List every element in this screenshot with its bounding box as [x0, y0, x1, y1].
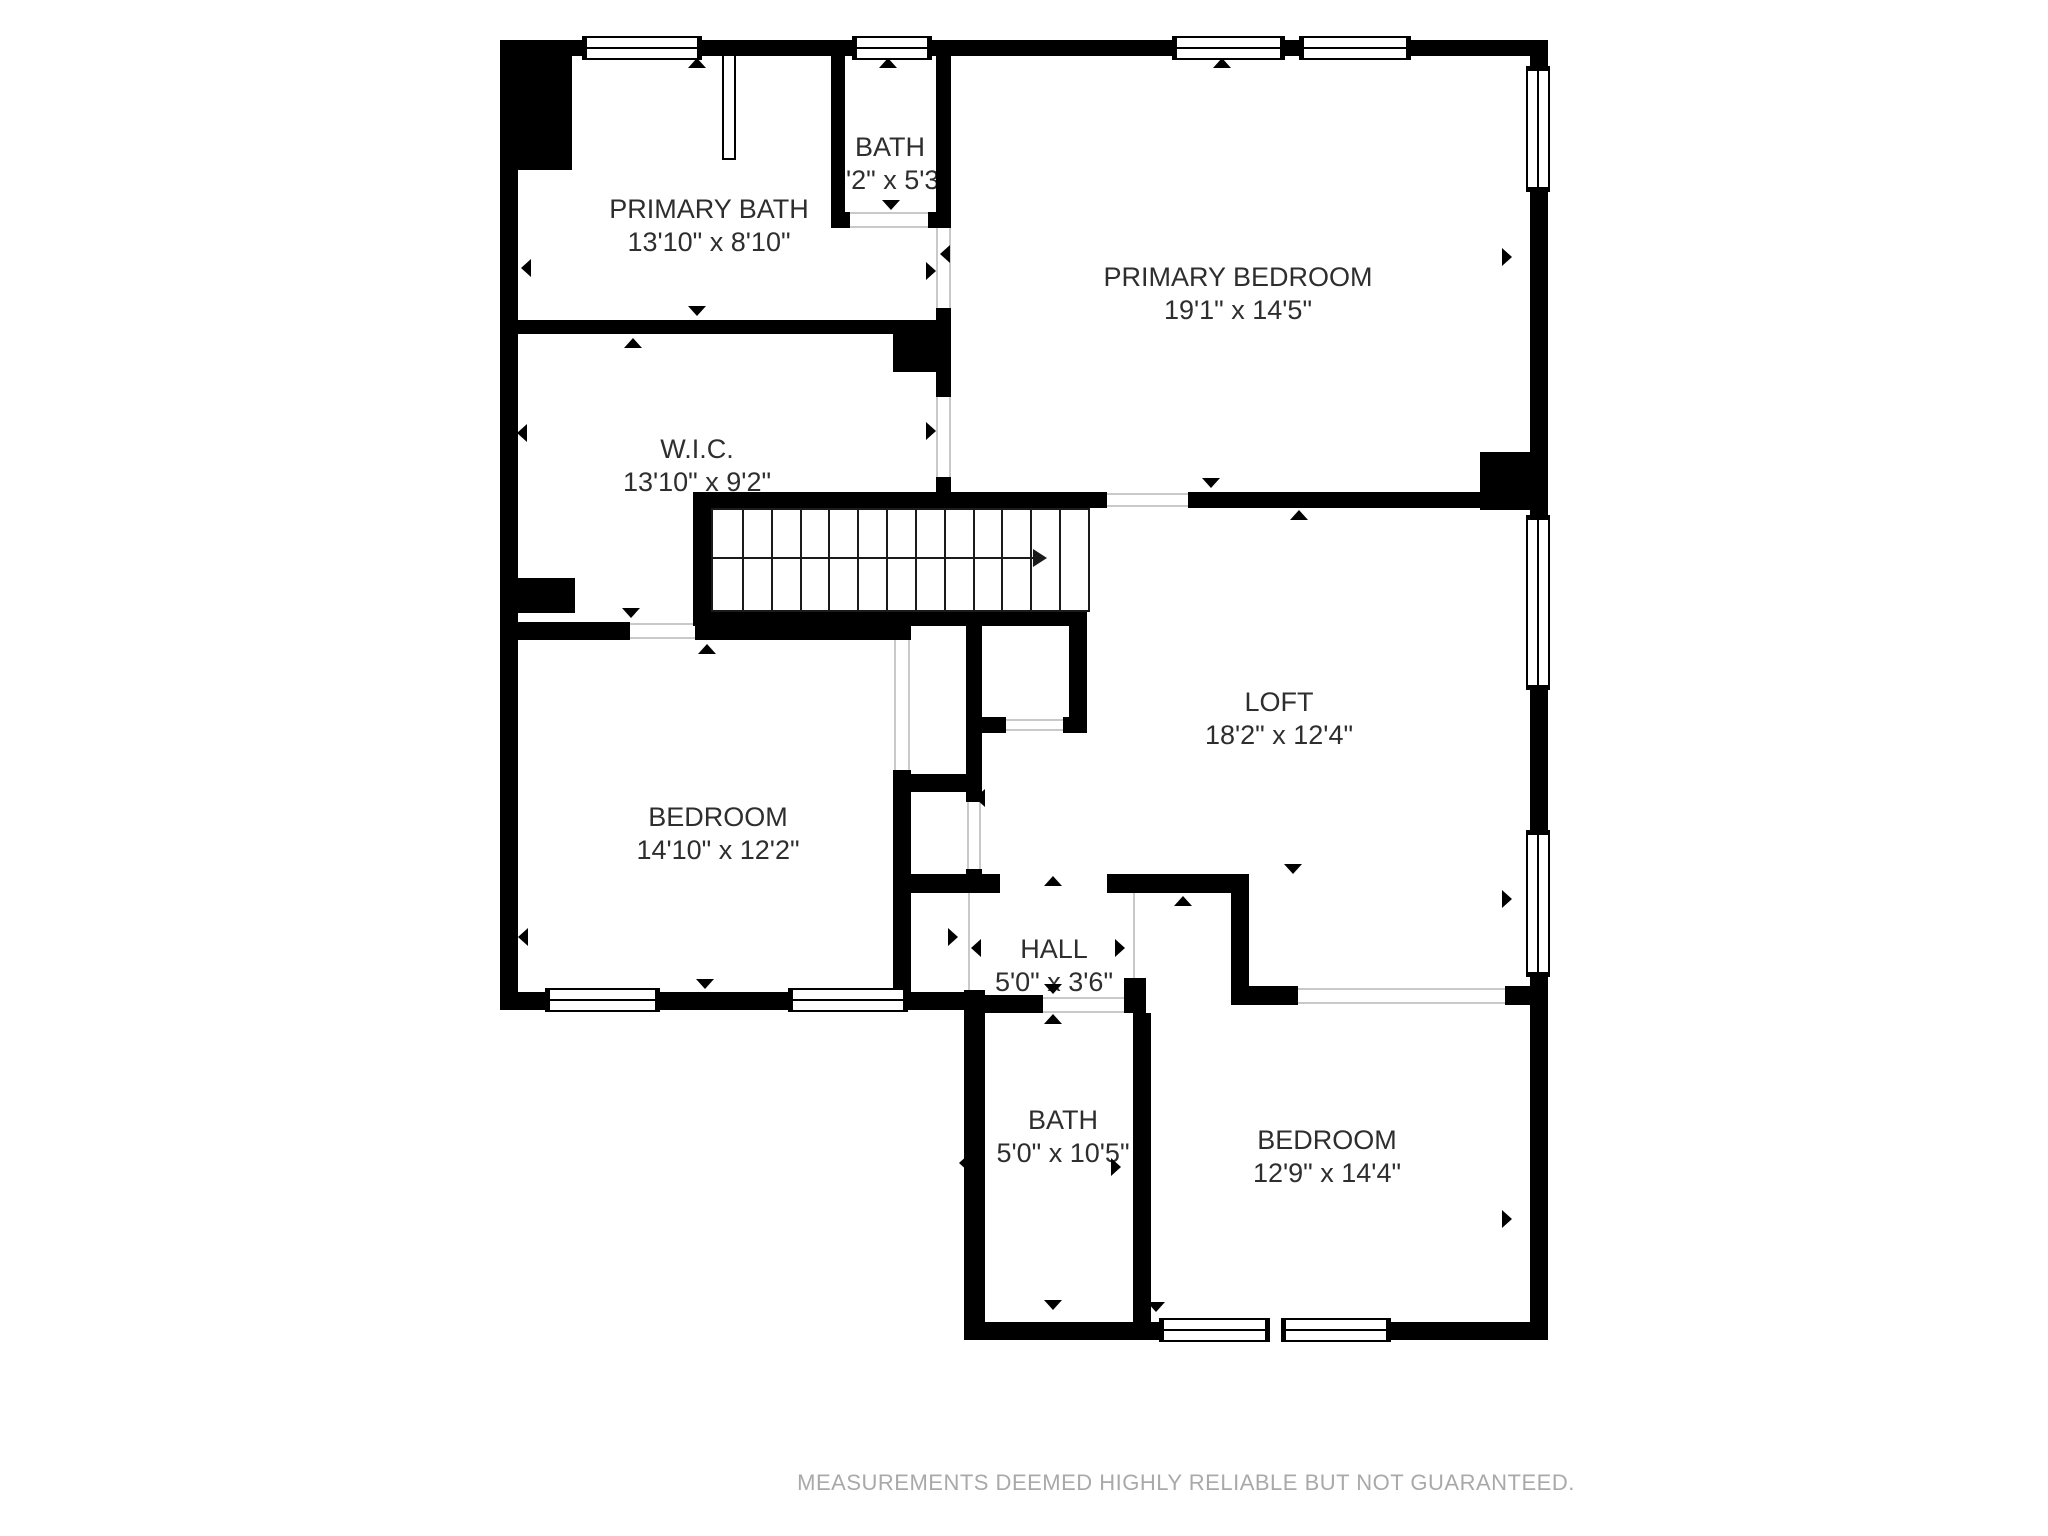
door-arrow-icon — [1044, 876, 1062, 886]
wall — [500, 622, 630, 640]
room-dims: 14'10" x 12'2" — [636, 834, 799, 867]
door-arrow-icon — [1136, 1139, 1146, 1157]
wall — [1133, 1013, 1151, 1340]
room-label-bedroom-right: BEDROOM 12'9" x 14'4" — [1253, 1124, 1401, 1190]
wall — [500, 40, 572, 170]
stair-tread — [915, 510, 917, 610]
door-opening — [630, 623, 695, 625]
wall — [1285, 40, 1299, 56]
wall — [500, 992, 545, 1010]
room-dims: 12'9" x 14'4" — [1253, 1157, 1401, 1190]
room-dims: 5'0" x 10'5" — [996, 1137, 1129, 1170]
cased-opening — [1298, 988, 1505, 990]
window — [582, 36, 702, 60]
stair-tread — [800, 510, 802, 610]
door-arrow-icon — [948, 928, 958, 946]
window — [1299, 36, 1411, 60]
door-opening — [1006, 719, 1063, 721]
room-dims: 3'2" x 5'3" — [831, 164, 949, 197]
door-arrow-icon — [926, 422, 936, 440]
wall — [1188, 492, 1480, 508]
door-arrow-icon — [940, 245, 950, 263]
door-opening — [949, 397, 951, 477]
door-arrow-icon — [1115, 939, 1125, 957]
door-opening — [936, 228, 938, 308]
stair-tread — [944, 510, 946, 610]
stair-direction-line — [711, 557, 1033, 559]
door-opening — [1107, 505, 1188, 507]
stair-tread — [1030, 510, 1032, 610]
door-arrow-icon — [1284, 864, 1302, 874]
stair-direction-arrow-icon — [1033, 549, 1047, 567]
stair-tread — [857, 510, 859, 610]
wall — [893, 320, 951, 372]
door-arrow-icon — [1044, 1014, 1062, 1024]
wall — [518, 578, 575, 613]
stair-tread — [1059, 510, 1061, 610]
door-arrow-icon — [517, 424, 527, 442]
wall — [903, 874, 1000, 893]
door-arrow-icon — [624, 338, 642, 348]
door-arrow-icon — [1502, 890, 1512, 908]
door-opening — [1133, 893, 1135, 978]
wall — [500, 40, 518, 1008]
door-arrow-icon — [1502, 248, 1512, 266]
room-name: BATH — [831, 131, 949, 164]
wall — [985, 995, 1043, 1013]
stair-tread — [771, 510, 773, 610]
wall — [831, 40, 845, 227]
wall — [1231, 874, 1249, 1005]
room-dims: 13'10" x 8'10" — [609, 226, 809, 259]
room-label-primary-bedroom: PRIMARY BEDROOM 19'1" x 14'5" — [1103, 261, 1372, 327]
window — [852, 36, 932, 60]
door-arrow-icon — [926, 262, 936, 280]
floor-plan: PRIMARY BATH 13'10" x 8'10" BATH 3'2" x … — [0, 0, 2048, 1536]
door-opening — [979, 802, 981, 869]
door-arrow-icon — [698, 644, 716, 654]
wall — [1124, 978, 1146, 1013]
room-label-bath-upper: BATH 3'2" x 5'3" — [831, 131, 949, 197]
wall — [982, 717, 1006, 733]
wall — [1480, 452, 1548, 510]
room-name: PRIMARY BEDROOM — [1103, 261, 1372, 294]
door-arrow-icon — [688, 306, 706, 316]
door-arrow-icon — [622, 608, 640, 618]
wall — [1530, 40, 1548, 66]
room-dims: 19'1" x 14'5" — [1103, 294, 1372, 327]
window — [788, 988, 908, 1012]
wall — [1391, 1322, 1548, 1340]
wall — [1249, 986, 1298, 1005]
wall — [936, 40, 951, 228]
door-arrow-icon — [1111, 1158, 1121, 1176]
door-opening — [1043, 1011, 1124, 1013]
room-name: HALL — [995, 933, 1113, 966]
door-arrow-icon — [1174, 896, 1192, 906]
door-opening — [968, 893, 970, 993]
room-label-loft: LOFT 18'2" x 12'4" — [1205, 686, 1353, 752]
door-arrow-icon — [879, 58, 897, 68]
wall — [1063, 717, 1087, 733]
door-arrow-icon — [1290, 510, 1308, 520]
wall — [831, 212, 850, 228]
wall — [932, 40, 1172, 56]
room-name: BATH — [996, 1104, 1129, 1137]
door-arrow-icon — [521, 259, 531, 277]
room-name: LOFT — [1205, 686, 1353, 719]
stair-tread — [828, 510, 830, 610]
wall — [966, 612, 982, 802]
door-arrow-icon — [1502, 1210, 1512, 1228]
wall — [695, 612, 893, 640]
cased-opening — [1298, 1002, 1505, 1004]
door-arrow-icon — [1202, 478, 1220, 488]
room-label-bath-lower: BATH 5'0" x 10'5" — [996, 1104, 1129, 1170]
wall — [1107, 874, 1231, 893]
room-label-bedroom-left: BEDROOM 14'10" x 12'2" — [636, 801, 799, 867]
window — [1159, 1318, 1270, 1342]
door-opening — [630, 637, 695, 639]
window — [1526, 66, 1550, 192]
door-opening — [1006, 729, 1063, 731]
door-opening — [949, 228, 951, 308]
stair-tread — [1001, 510, 1003, 610]
door-opening — [894, 640, 896, 770]
door-arrow-icon — [688, 58, 706, 68]
room-name: PRIMARY BATH — [609, 193, 809, 226]
door-arrow-icon — [1044, 1300, 1062, 1310]
wall — [1069, 612, 1087, 733]
wall — [660, 992, 788, 1010]
door-arrow-icon — [959, 1154, 969, 1172]
wall — [964, 1322, 1159, 1340]
window — [1526, 515, 1550, 690]
room-name: BEDROOM — [1253, 1124, 1401, 1157]
door-opening — [850, 226, 928, 228]
door-arrow-icon — [1044, 984, 1062, 994]
disclaimer-text: MEASUREMENTS DEEMED HIGHLY RELIABLE BUT … — [797, 1470, 1575, 1496]
window — [545, 988, 660, 1012]
room-name: BEDROOM — [636, 801, 799, 834]
door-opening — [967, 802, 969, 869]
stair-tread — [886, 510, 888, 610]
wall — [693, 492, 1107, 508]
wall — [1505, 986, 1530, 1005]
wall — [893, 612, 911, 640]
stair-tread — [973, 510, 975, 610]
wall — [1530, 977, 1548, 1340]
wall — [500, 320, 893, 334]
door-arrow-icon — [975, 789, 985, 807]
wall — [928, 212, 951, 228]
door-opening — [1107, 493, 1188, 495]
door-arrow-icon — [518, 928, 528, 946]
room-label-wic: W.I.C. 13'10" x 9'2" — [623, 433, 771, 499]
door-arrow-icon — [882, 200, 900, 210]
glass-partition — [722, 54, 736, 160]
stair-tread — [742, 510, 744, 610]
door-opening — [850, 212, 928, 214]
door-opening — [936, 397, 938, 477]
door-opening — [908, 640, 910, 770]
door-arrow-icon — [1213, 58, 1231, 68]
window — [1172, 36, 1285, 60]
door-arrow-icon — [971, 939, 981, 957]
room-name: W.I.C. — [623, 433, 771, 466]
wall — [1530, 690, 1548, 830]
window — [1526, 830, 1550, 977]
door-opening — [1043, 997, 1124, 999]
door-arrow-icon — [1147, 1302, 1165, 1312]
door-arrow-icon — [696, 979, 714, 989]
wall — [1411, 40, 1548, 56]
window — [1281, 1318, 1391, 1342]
room-dims: 18'2" x 12'4" — [1205, 719, 1353, 752]
wall — [693, 492, 711, 626]
room-label-primary-bath: PRIMARY BATH 13'10" x 8'10" — [609, 193, 809, 259]
